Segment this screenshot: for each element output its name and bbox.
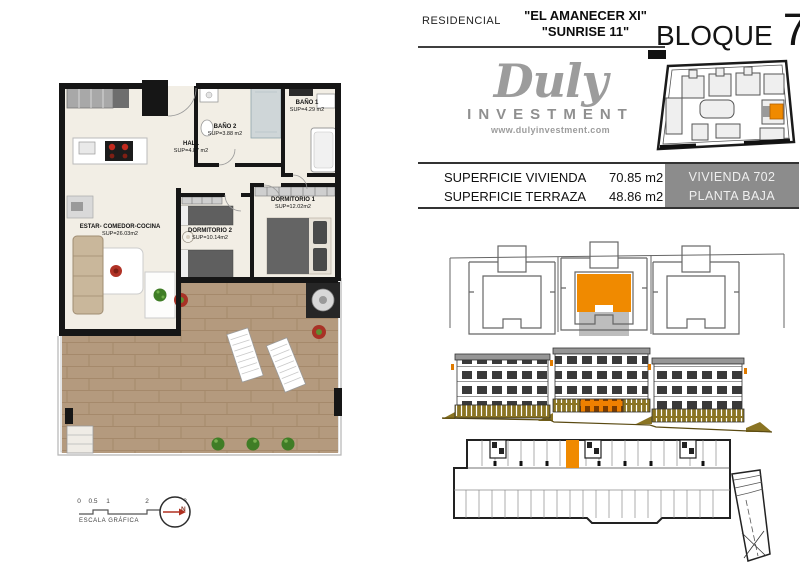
cooktop xyxy=(105,141,133,161)
compass-circle xyxy=(155,492,195,532)
floorplan-drawing xyxy=(55,78,355,468)
unit-badge: VIVIENDA 702 PLANTA BAJA xyxy=(665,164,799,207)
header-divider xyxy=(418,46,665,48)
scale-caption: ESCALA GRÁFICA xyxy=(79,518,139,524)
garage-ramp xyxy=(732,470,770,561)
garage-plan xyxy=(430,428,800,573)
highlighted-unit xyxy=(577,274,631,312)
unit-number: VIVIENDA 702 xyxy=(665,168,799,187)
terrace-steps xyxy=(67,426,93,453)
kitchen-island xyxy=(73,138,147,164)
summary-value: 70.85 m2 xyxy=(609,168,663,187)
building-elevation xyxy=(455,354,550,418)
scale-tick: 0.5 xyxy=(88,498,97,505)
site-plan-map xyxy=(648,50,800,162)
bloque-title: BLOQUE 7 xyxy=(656,4,800,56)
building-elevation xyxy=(652,358,744,422)
summary-bottom-rule xyxy=(418,207,799,209)
summary-label: SUPERFICIE VIVIENDA xyxy=(444,168,609,187)
plant xyxy=(154,289,167,302)
floorplan-sheet: { "header": { "residencial_label": "RESI… xyxy=(0,0,800,574)
scale-tick: 1 xyxy=(106,498,110,505)
unit-floor: PLANTA BAJA xyxy=(665,187,799,206)
north-compass-icon: N xyxy=(155,492,195,532)
scale-tick: 0 xyxy=(77,498,81,505)
compass-north-label: N xyxy=(181,506,186,513)
brand-website: www.dulyinvestment.com xyxy=(438,125,663,135)
elevation-drawing xyxy=(430,338,800,438)
summary-row: SUPERFICIE VIVIENDA 70.85 m2 xyxy=(418,168,665,187)
highlighted-block xyxy=(770,104,783,119)
desk xyxy=(67,196,93,218)
bloque-number: 7 xyxy=(783,4,800,56)
project-name-line2: "SUNRISE 11" xyxy=(542,24,629,39)
adjacent-unit xyxy=(762,106,770,117)
roof-plan xyxy=(432,228,800,340)
project-name: "EL AMANECER XI" "SUNRISE 11" xyxy=(498,8,673,40)
area-summary: SUPERFICIE VIVIENDA 70.85 m2 SUPERFICIE … xyxy=(418,164,665,207)
outdoor-shower xyxy=(306,282,340,318)
scale-tick: 2 xyxy=(145,498,149,505)
summary-row: SUPERFICIE TERRAZA 48.86 m2 xyxy=(418,187,665,206)
kitchen-closet xyxy=(67,88,129,108)
brand-logo: Duly INVESTMENT www.dulyinvestment.com xyxy=(438,56,663,135)
highlighted-parking-space xyxy=(566,440,579,468)
sofa xyxy=(73,236,103,314)
summary-value: 48.86 m2 xyxy=(609,187,663,206)
toilet xyxy=(201,120,213,136)
shower xyxy=(251,88,281,138)
building-elevation-highlighted xyxy=(553,348,650,412)
residencial-label: RESIDENCIAL xyxy=(422,15,501,27)
project-name-line1: "EL AMANECER XI" xyxy=(524,8,647,23)
summary-label: SUPERFICIE TERRAZA xyxy=(444,187,609,206)
coffee-table xyxy=(145,272,175,318)
brand-name: Duly xyxy=(438,56,663,106)
bloque-label: BLOQUE xyxy=(656,20,773,52)
brand-subtitle: INVESTMENT xyxy=(438,106,663,123)
highlighted-ground-floor xyxy=(580,399,623,412)
sink xyxy=(317,94,335,108)
